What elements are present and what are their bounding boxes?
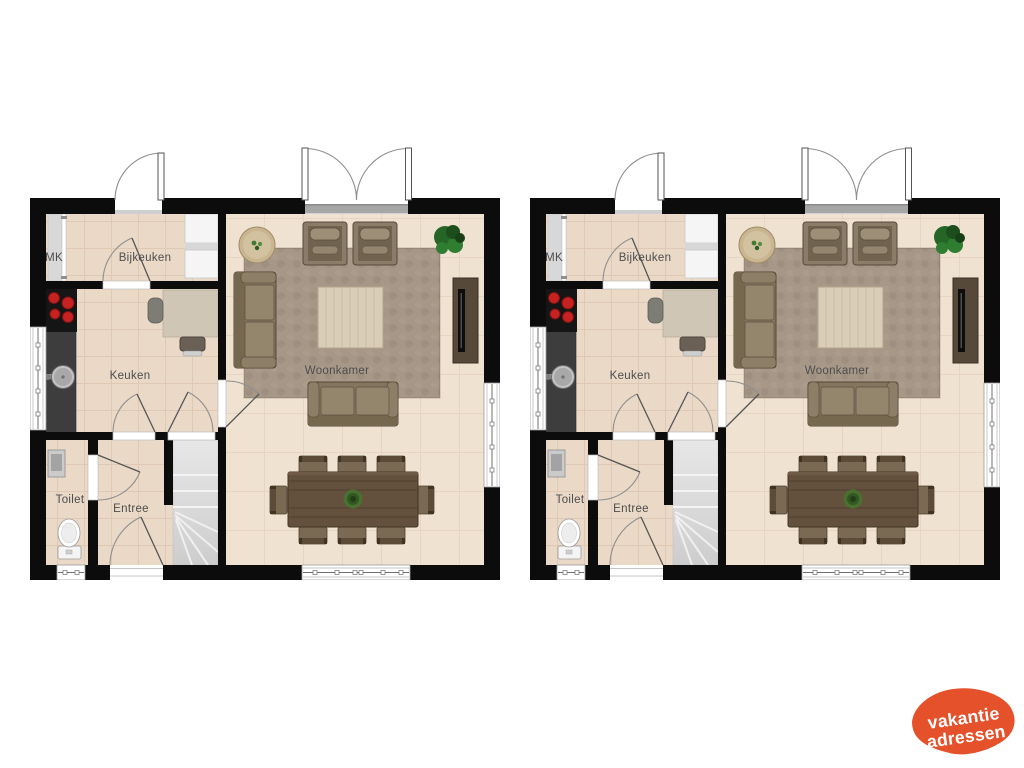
floorplan-canvas: MK Bijkeuken Keuken Woonkamer Toilet Ent… — [0, 0, 1024, 768]
vakantieadressen-logo: vakantie adressen — [910, 686, 1020, 768]
floorplan-left — [30, 140, 500, 580]
floorplan-right — [530, 140, 1000, 580]
